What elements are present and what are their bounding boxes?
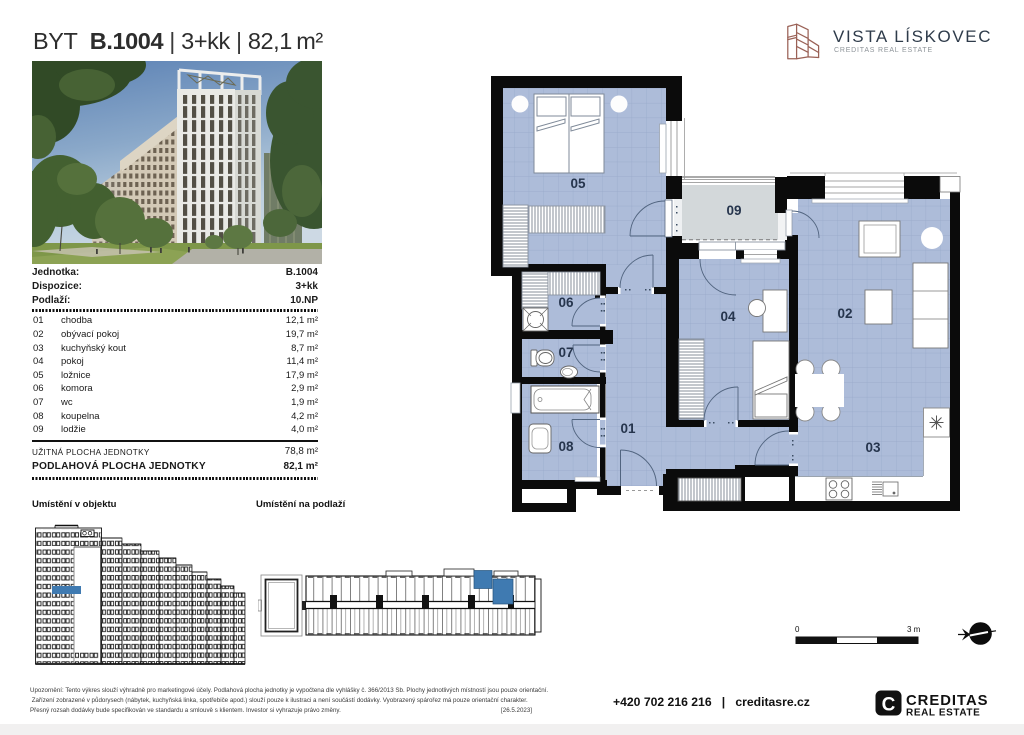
svg-text:09: 09 (726, 203, 741, 218)
svg-text:0: 0 (795, 625, 800, 634)
svg-text:02: 02 (837, 306, 852, 321)
svg-text:3 m: 3 m (907, 625, 921, 634)
svg-text:03: 03 (865, 440, 881, 455)
svg-text:08: 08 (558, 439, 574, 454)
svg-text:04: 04 (720, 309, 736, 324)
svg-text:05: 05 (570, 176, 586, 191)
svg-text:06: 06 (558, 295, 574, 310)
svg-text:REAL ESTATE: REAL ESTATE (906, 708, 980, 718)
svg-text:01: 01 (620, 421, 636, 436)
svg-text:C: C (882, 695, 896, 716)
svg-text:07: 07 (558, 345, 573, 360)
